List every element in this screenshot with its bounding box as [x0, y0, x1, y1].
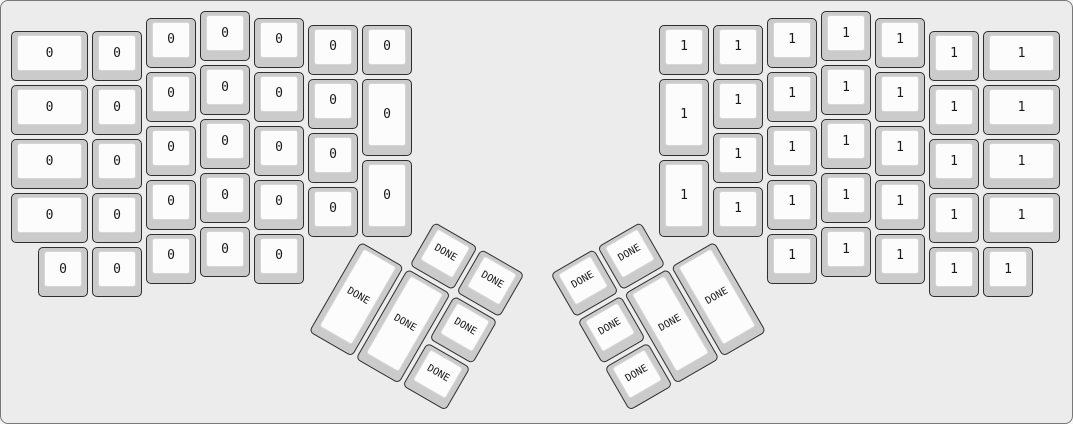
- key-left-main-13[interactable]: 0: [146, 180, 196, 230]
- keycap-face: 1: [827, 231, 865, 267]
- keycap-face: DONE: [466, 255, 517, 305]
- key-label: 0: [46, 101, 54, 114]
- keycap-face: 0: [17, 197, 82, 233]
- keycap-face: 0: [314, 83, 352, 119]
- keycap-face: 0: [98, 89, 136, 125]
- key-label: 0: [221, 189, 229, 202]
- keycap-face: 1: [881, 184, 919, 220]
- key-left-main-19[interactable]: 0: [200, 227, 250, 277]
- keycap-face: 1: [989, 197, 1054, 233]
- keycap-face: 1: [773, 22, 811, 58]
- key-left-main-31[interactable]: 0: [362, 160, 412, 237]
- key-right-main-17[interactable]: 1: [821, 119, 871, 169]
- key-label: 1: [896, 87, 904, 100]
- key-label: 0: [221, 135, 229, 148]
- key-right-main-6[interactable]: 1: [929, 139, 979, 189]
- keycap-face: 0: [98, 197, 136, 233]
- keycap-face: DONE: [604, 228, 655, 278]
- key-left-main-27[interactable]: 0: [308, 133, 358, 183]
- keycap-face: 0: [206, 177, 244, 213]
- keycap-face: 1: [827, 69, 865, 105]
- keycap-face: 1: [935, 197, 973, 233]
- key-label: 0: [167, 195, 175, 208]
- key-label: 1: [896, 33, 904, 46]
- key-left-main-3[interactable]: 0: [11, 193, 88, 243]
- key-label: 0: [167, 141, 175, 154]
- key-label: 0: [46, 155, 54, 168]
- key-label: 0: [167, 33, 175, 46]
- key-label: 0: [167, 87, 175, 100]
- keycap-face: 0: [152, 130, 190, 166]
- key-label: 1: [842, 81, 850, 94]
- key-label: 0: [113, 155, 121, 168]
- key-left-main-25[interactable]: 0: [308, 25, 358, 75]
- key-label: 1: [896, 195, 904, 208]
- keycap-face: 1: [665, 164, 703, 227]
- keycap-face: 0: [17, 35, 82, 71]
- keycap-face: 0: [206, 15, 244, 51]
- keycap-face: 1: [881, 76, 919, 112]
- key-left-main-29[interactable]: 0: [362, 25, 412, 75]
- key-label: 0: [275, 33, 283, 46]
- keycap-face: 1: [665, 83, 703, 146]
- keycap-face: 1: [989, 251, 1027, 287]
- key-left-main-21[interactable]: 0: [254, 72, 304, 122]
- key-label: DONE: [597, 316, 623, 337]
- key-right-main-3[interactable]: 1: [983, 193, 1060, 243]
- key-label: 1: [950, 101, 958, 114]
- keycap-face: 1: [935, 89, 973, 125]
- key-label: 1: [734, 202, 742, 215]
- key-label: DONE: [425, 363, 451, 384]
- key-label: DONE: [345, 286, 371, 307]
- keycap-face: 1: [827, 177, 865, 213]
- key-label: DONE: [704, 286, 730, 307]
- key-right-main-0[interactable]: 1: [983, 31, 1060, 81]
- key-label: 0: [221, 243, 229, 256]
- key-right-main-23[interactable]: 1: [767, 180, 817, 230]
- key-label: 0: [275, 195, 283, 208]
- key-label: 1: [680, 40, 688, 53]
- key-left-main-24[interactable]: 0: [254, 234, 304, 284]
- keycap-face: 1: [719, 83, 757, 119]
- keycap-face: 0: [152, 22, 190, 58]
- keycap-face: 0: [98, 143, 136, 179]
- key-right-main-25[interactable]: 1: [713, 25, 763, 75]
- key-left-main-26[interactable]: 0: [308, 79, 358, 129]
- key-label: 1: [734, 40, 742, 53]
- keycap-face: 1: [935, 251, 973, 287]
- key-label: 0: [221, 27, 229, 40]
- key-label: 0: [329, 40, 337, 53]
- keycap-face: 0: [314, 191, 352, 227]
- key-label: 0: [329, 94, 337, 107]
- key-label: 1: [950, 155, 958, 168]
- key-label: DONE: [617, 243, 643, 264]
- key-right-main-24[interactable]: 1: [767, 234, 817, 284]
- key-left-main-7[interactable]: 0: [92, 193, 142, 243]
- keycap-face: 1: [881, 238, 919, 274]
- key-left-main-15[interactable]: 0: [200, 11, 250, 61]
- key-left-main-10[interactable]: 0: [146, 18, 196, 68]
- keycap-face: 0: [98, 35, 136, 71]
- key-left-main-14[interactable]: 0: [146, 234, 196, 284]
- keycap-face: 1: [773, 238, 811, 274]
- key-left-main-11[interactable]: 0: [146, 72, 196, 122]
- key-right-main-4[interactable]: 1: [929, 31, 979, 81]
- key-label: 0: [329, 202, 337, 215]
- keycap-face: 0: [368, 164, 406, 227]
- keycap-face: 0: [260, 238, 298, 274]
- keycap-face: 0: [260, 22, 298, 58]
- keyboard-canvas: 0000000000000000000000000000000011111111…: [0, 0, 1073, 424]
- keycap-face: 0: [17, 89, 82, 125]
- key-right-main-30[interactable]: 1: [659, 79, 709, 156]
- keycap-face: 1: [773, 184, 811, 220]
- key-label: 1: [1018, 209, 1026, 222]
- keycap-face: 0: [17, 143, 82, 179]
- keycap-face: 1: [989, 35, 1054, 71]
- key-label: DONE: [432, 243, 458, 264]
- key-label: 1: [950, 47, 958, 60]
- key-right-main-8[interactable]: 1: [929, 247, 979, 297]
- key-label: 1: [680, 108, 688, 121]
- key-label: 1: [842, 135, 850, 148]
- key-right-main-2[interactable]: 1: [983, 139, 1060, 189]
- key-label: 1: [1018, 47, 1026, 60]
- keycap-face: 0: [368, 29, 406, 65]
- keycap-face: 1: [719, 29, 757, 65]
- key-label: 0: [275, 87, 283, 100]
- key-left-main-23[interactable]: 0: [254, 180, 304, 230]
- keycap-face: DONE: [420, 228, 471, 278]
- key-right-main-29[interactable]: 1: [659, 25, 709, 75]
- key-right-main-13[interactable]: 1: [875, 180, 925, 230]
- key-left-main-0[interactable]: 0: [11, 31, 88, 81]
- key-label: 0: [113, 263, 121, 276]
- key-right-main-15[interactable]: 1: [821, 11, 871, 61]
- key-label: 0: [46, 209, 54, 222]
- key-label: 0: [113, 47, 121, 60]
- keycap-face: 0: [314, 29, 352, 65]
- keycap-face: 1: [989, 143, 1054, 179]
- key-label: 1: [788, 249, 796, 262]
- key-left-main-8[interactable]: 0: [38, 247, 88, 297]
- key-label: DONE: [624, 363, 650, 384]
- key-right-main-10[interactable]: 1: [875, 18, 925, 68]
- key-label: 1: [1018, 101, 1026, 114]
- keycap-face: 1: [719, 191, 757, 227]
- key-right-main-9[interactable]: 1: [983, 247, 1033, 297]
- key-label: 1: [734, 94, 742, 107]
- key-label: DONE: [479, 270, 505, 291]
- key-left-main-5[interactable]: 0: [92, 85, 142, 135]
- keycap-face: 0: [152, 238, 190, 274]
- key-label: 0: [383, 40, 391, 53]
- key-left-main-12[interactable]: 0: [146, 126, 196, 176]
- keycap-face: 0: [152, 76, 190, 112]
- key-right-main-19[interactable]: 1: [821, 227, 871, 277]
- key-right-main-14[interactable]: 1: [875, 234, 925, 284]
- keycap-face: 0: [368, 83, 406, 146]
- key-label: 0: [113, 209, 121, 222]
- key-label: 1: [788, 141, 796, 154]
- key-label: 1: [734, 148, 742, 161]
- key-right-main-22[interactable]: 1: [767, 126, 817, 176]
- key-label: 1: [842, 243, 850, 256]
- key-label: 1: [950, 263, 958, 276]
- keycap-face: 1: [773, 130, 811, 166]
- key-left-main-30[interactable]: 0: [362, 79, 412, 156]
- key-right-main-18[interactable]: 1: [821, 173, 871, 223]
- key-label: 0: [167, 249, 175, 262]
- key-label: 1: [788, 33, 796, 46]
- key-label: 1: [842, 27, 850, 40]
- keycap-face: 0: [260, 130, 298, 166]
- keycap-face: DONE: [612, 348, 663, 398]
- keycap-face: DONE: [412, 348, 463, 398]
- key-right-main-7[interactable]: 1: [929, 193, 979, 243]
- key-right-main-1[interactable]: 1: [983, 85, 1060, 135]
- key-right-main-26[interactable]: 1: [713, 79, 763, 129]
- keycap-face: 0: [206, 123, 244, 159]
- key-left-main-1[interactable]: 0: [11, 85, 88, 135]
- keycap-face: 1: [665, 29, 703, 65]
- key-label: 0: [59, 263, 67, 276]
- key-label: 1: [788, 195, 796, 208]
- key-label: 1: [950, 209, 958, 222]
- key-right-main-27[interactable]: 1: [713, 133, 763, 183]
- key-label: 1: [1018, 155, 1026, 168]
- key-right-main-11[interactable]: 1: [875, 72, 925, 122]
- keycap-face: DONE: [439, 302, 490, 352]
- key-label: DONE: [392, 313, 418, 334]
- key-label: 0: [383, 108, 391, 121]
- keycap-face: 1: [827, 15, 865, 51]
- key-label: DONE: [452, 316, 478, 337]
- keycap-face: 1: [989, 89, 1054, 125]
- key-label: 0: [383, 189, 391, 202]
- key-label: 0: [113, 101, 121, 114]
- keycap-face: 1: [935, 35, 973, 71]
- keycap-face: 0: [206, 69, 244, 105]
- keycap-face: 0: [314, 137, 352, 173]
- keycap-face: 0: [206, 231, 244, 267]
- key-label: 0: [221, 81, 229, 94]
- keycap-face: DONE: [558, 255, 609, 305]
- keycap-face: 0: [152, 184, 190, 220]
- keycap-face: 0: [44, 251, 82, 287]
- key-label: DONE: [570, 270, 596, 291]
- key-right-main-20[interactable]: 1: [767, 18, 817, 68]
- key-label: 0: [275, 249, 283, 262]
- key-label: 1: [1004, 263, 1012, 276]
- key-left-main-22[interactable]: 0: [254, 126, 304, 176]
- key-left-main-9[interactable]: 0: [92, 247, 142, 297]
- key-left-main-2[interactable]: 0: [11, 139, 88, 189]
- keycap-face: 1: [935, 143, 973, 179]
- key-label: DONE: [657, 313, 683, 334]
- key-right-main-16[interactable]: 1: [821, 65, 871, 115]
- keycap-face: 0: [260, 184, 298, 220]
- keycap-face: 1: [881, 130, 919, 166]
- key-left-main-16[interactable]: 0: [200, 65, 250, 115]
- keycap-face: 1: [827, 123, 865, 159]
- key-left-main-17[interactable]: 0: [200, 119, 250, 169]
- key-right-main-12[interactable]: 1: [875, 126, 925, 176]
- key-left-main-28[interactable]: 0: [308, 187, 358, 237]
- keycap-face: 1: [881, 22, 919, 58]
- key-right-main-21[interactable]: 1: [767, 72, 817, 122]
- key-right-main-28[interactable]: 1: [713, 187, 763, 237]
- keycap-face: DONE: [585, 302, 636, 352]
- key-label: 1: [788, 87, 796, 100]
- keycap-face: 1: [719, 137, 757, 173]
- keycap-face: 0: [98, 251, 136, 287]
- key-label: 1: [896, 141, 904, 154]
- key-left-main-6[interactable]: 0: [92, 139, 142, 189]
- key-label: 1: [842, 189, 850, 202]
- key-label: 1: [680, 189, 688, 202]
- key-label: 0: [275, 141, 283, 154]
- key-right-main-31[interactable]: 1: [659, 160, 709, 237]
- key-right-main-5[interactable]: 1: [929, 85, 979, 135]
- keycap-face: 0: [260, 76, 298, 112]
- key-left-main-18[interactable]: 0: [200, 173, 250, 223]
- key-label: 0: [329, 148, 337, 161]
- key-left-main-20[interactable]: 0: [254, 18, 304, 68]
- keycap-face: 1: [773, 76, 811, 112]
- key-label: 0: [46, 47, 54, 60]
- key-left-main-4[interactable]: 0: [92, 31, 142, 81]
- key-label: 1: [896, 249, 904, 262]
